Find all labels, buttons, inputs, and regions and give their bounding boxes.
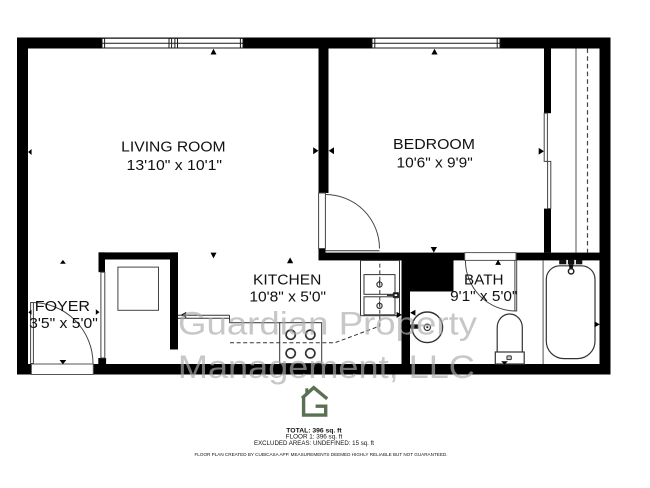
- svg-text:10'6" x 9'9": 10'6" x 9'9": [397, 155, 473, 172]
- svg-text:FOYER: FOYER: [35, 298, 90, 315]
- svg-text:EXCLUDED AREAS: UNDEFINED: 15: EXCLUDED AREAS: UNDEFINED: 15 sq. ft: [254, 440, 374, 447]
- svg-text:BEDROOM: BEDROOM: [393, 136, 475, 153]
- svg-text:LIVING ROOM: LIVING ROOM: [121, 139, 225, 156]
- svg-text:Guardian Property: Guardian Property: [178, 306, 478, 342]
- svg-text:FLOOR PLAN CREATED BY CUBICASA: FLOOR PLAN CREATED BY CUBICASA APP. MEAS…: [195, 452, 448, 457]
- svg-text:3'5" x 5'0": 3'5" x 5'0": [29, 315, 98, 332]
- svg-text:BATH: BATH: [464, 271, 504, 288]
- svg-text:9'1" x 5'0": 9'1" x 5'0": [450, 288, 517, 305]
- svg-text:10'8" x 5'0": 10'8" x 5'0": [249, 289, 326, 306]
- svg-text:13'10" x 10'1": 13'10" x 10'1": [127, 157, 223, 174]
- svg-text:KITCHEN: KITCHEN: [253, 271, 321, 288]
- svg-text:Management, LLC: Management, LLC: [178, 349, 475, 385]
